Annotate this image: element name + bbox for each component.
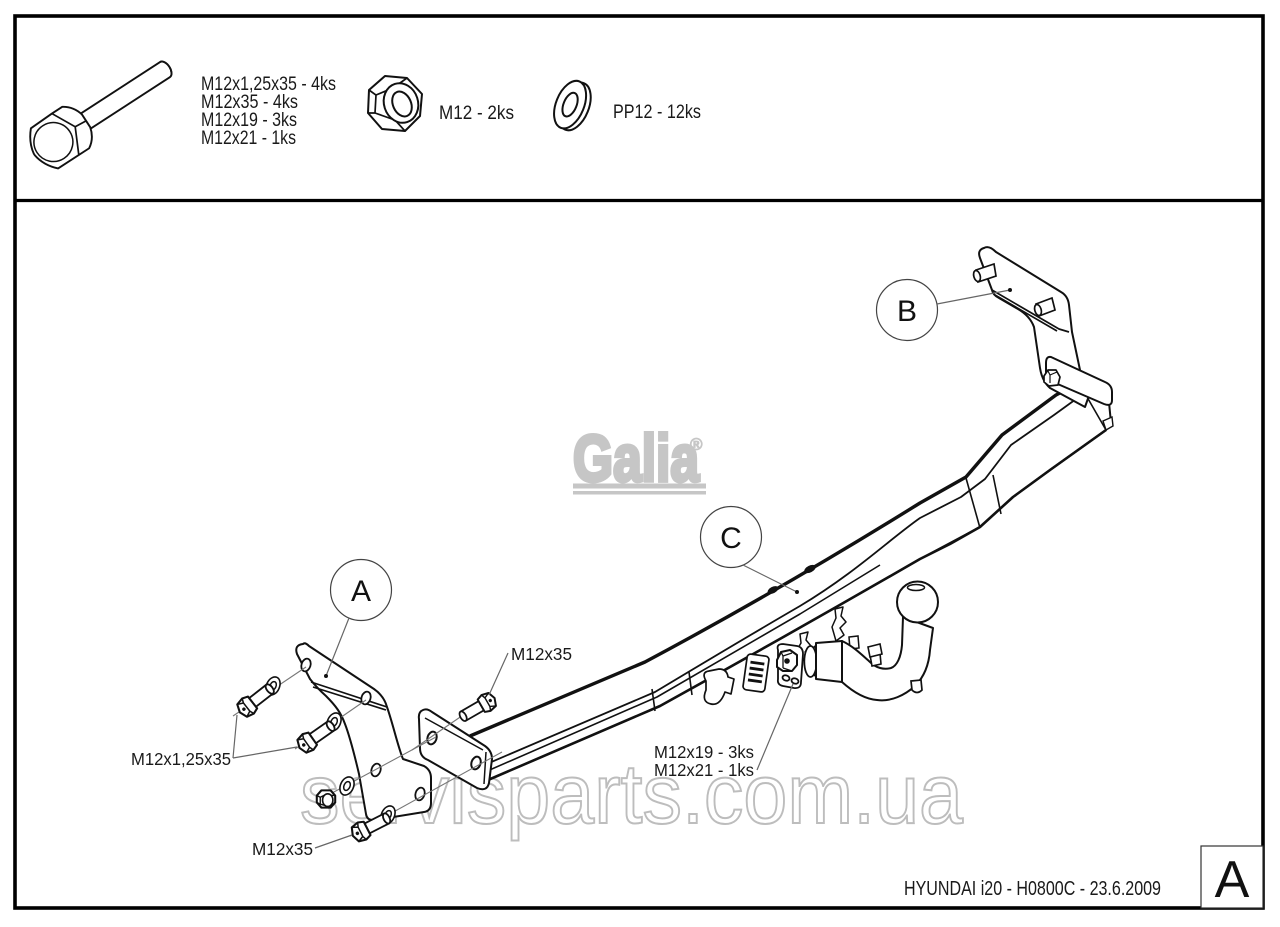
svg-text:M12x21 - 1ks: M12x21 - 1ks	[201, 127, 296, 149]
svg-text:M12 - 2ks: M12 - 2ks	[439, 102, 514, 124]
svg-text:A: A	[351, 575, 371, 608]
svg-text:B: B	[897, 295, 917, 328]
svg-text:®: ®	[690, 435, 703, 454]
svg-text:M12x1,25x35: M12x1,25x35	[131, 749, 231, 769]
svg-text:M12x19 - 3ks: M12x19 - 3ks	[654, 742, 754, 762]
svg-text:C: C	[720, 522, 742, 555]
svg-text:A: A	[1215, 851, 1250, 909]
svg-text:M12x35: M12x35	[252, 839, 313, 859]
svg-text:HYUNDAI i20 - H0800C - 23.6.20: HYUNDAI i20 - H0800C - 23.6.2009	[904, 877, 1161, 900]
svg-text:PP12 - 12ks: PP12 - 12ks	[613, 101, 701, 123]
svg-text:M12x35: M12x35	[511, 644, 572, 664]
svg-text:M12x21 - 1ks: M12x21 - 1ks	[654, 760, 754, 780]
